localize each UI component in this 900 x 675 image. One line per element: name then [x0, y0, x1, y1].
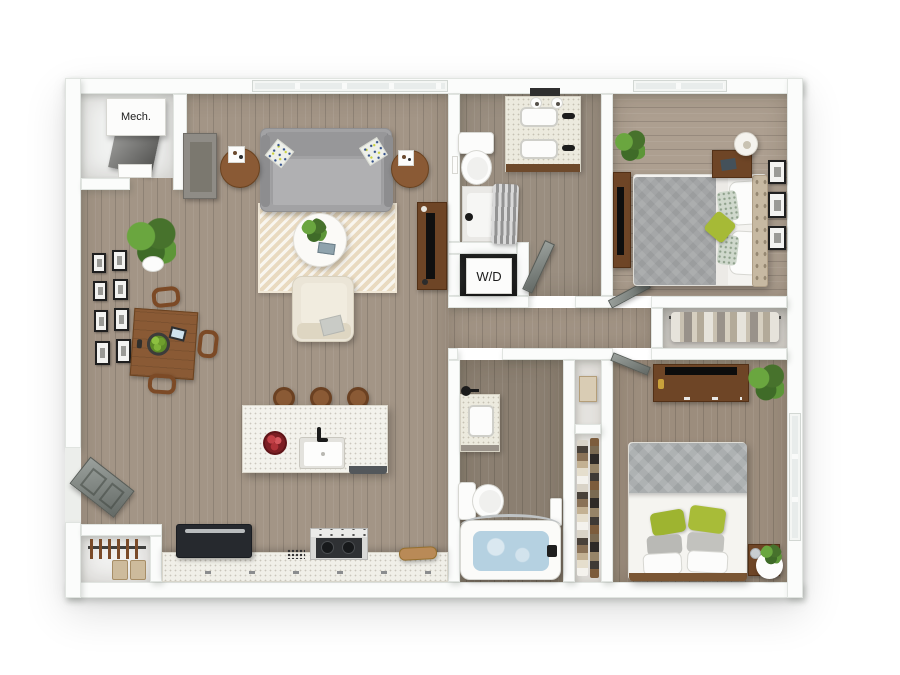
- bath-water: [473, 531, 549, 571]
- potted-plant-bedroom2: [748, 364, 784, 404]
- gallery-frame: [92, 253, 106, 273]
- sofa-seat: [271, 159, 383, 205]
- wall-entry-closet-top: [81, 524, 162, 536]
- vanity-tray: [530, 88, 560, 96]
- entry-cabinet-panel: [190, 142, 212, 192]
- toilet-seat: [479, 490, 501, 513]
- bedroom2-dresser: [653, 364, 749, 402]
- outer-wall-left-upper: [65, 78, 81, 448]
- kitchen-island: [242, 405, 388, 473]
- headboard: [752, 175, 768, 287]
- hallway-floor: [448, 308, 651, 348]
- wall-frame: [768, 192, 786, 218]
- island-faucet-spout: [317, 438, 328, 442]
- armchair: [292, 276, 354, 342]
- tv-console: [417, 202, 447, 290]
- bedroom-1-window: [633, 80, 727, 92]
- folded-towels: [577, 440, 588, 576]
- wall-hall-north-c: [651, 296, 787, 308]
- gallery-frame: [93, 281, 107, 301]
- plant-pot-entry: [142, 256, 164, 272]
- refrigerator: [176, 524, 252, 558]
- range-stove: [310, 528, 368, 560]
- wall-hall-south-c: [651, 348, 787, 360]
- sink-basin: [520, 139, 558, 159]
- wall-bedroom-closet-west: [651, 308, 663, 348]
- linen-cubby-box: [579, 376, 597, 402]
- dining-chair-east: [197, 329, 220, 359]
- dining-chair-north: [151, 286, 181, 309]
- wall-frame: [768, 160, 786, 184]
- dresser-pulls: [662, 397, 742, 400]
- toilet-bowl: [461, 150, 492, 185]
- bed-bedroom2: [628, 442, 746, 580]
- sofa-arm-left: [261, 135, 270, 207]
- tub-faucet: [547, 545, 557, 557]
- mech-pan: [118, 164, 152, 178]
- gallery-frame: [113, 279, 128, 300]
- stove-control-panel: [311, 529, 367, 537]
- book: [720, 158, 736, 171]
- wall-mech-south: [81, 178, 130, 190]
- hanging-clothes-linen: [590, 438, 599, 578]
- storage-basket: [112, 560, 128, 580]
- sconce-center: [556, 102, 560, 106]
- washer-dryer-unit: W/D: [466, 258, 512, 294]
- sofa: [260, 128, 392, 212]
- console-decor: [421, 206, 427, 212]
- wall-frame: [768, 226, 786, 250]
- hanging-clothes: [671, 312, 779, 342]
- toilet-bowl: [472, 484, 504, 518]
- candle: [233, 151, 237, 155]
- stove-cooktop: [316, 538, 362, 558]
- candle: [239, 155, 243, 159]
- wall-hall-north-b: [575, 296, 613, 308]
- bed-frame-wood: [629, 573, 747, 581]
- gallery-frame: [94, 310, 108, 332]
- throw-blanket-gray: [629, 443, 747, 493]
- pepper-grinder: [137, 339, 143, 348]
- cutting-board: [399, 546, 438, 561]
- refrigerator-handles: [185, 529, 245, 533]
- tv: [665, 367, 737, 375]
- dishwasher: [349, 466, 387, 474]
- floor-plan-render: Mech.: [0, 0, 900, 675]
- sconce-light: [551, 97, 563, 109]
- vanity-cabinet-edge: [506, 164, 580, 172]
- burner: [342, 541, 355, 554]
- wall-bath2-west: [448, 360, 460, 582]
- bath2-vanity: [460, 394, 500, 452]
- entry-door-panel-2: [99, 482, 125, 509]
- wall-hall-north-a: [448, 296, 529, 308]
- gallery-frame: [95, 341, 110, 365]
- counter-drawer-pulls: [167, 571, 445, 574]
- burner: [321, 541, 334, 554]
- wall-bath2-east: [563, 360, 575, 582]
- sink-basin: [520, 107, 558, 127]
- gallery-frame: [114, 308, 129, 331]
- bath1-vanity: [505, 96, 581, 172]
- bed-bedroom1: [633, 174, 767, 286]
- tablet-screen: [171, 329, 185, 340]
- shower-head: [465, 213, 473, 221]
- wall-laundry-west: [448, 254, 460, 296]
- candle-tray-right: [398, 150, 414, 166]
- wall-bedroom1-west: [601, 94, 613, 296]
- storage-basket: [130, 560, 146, 580]
- bathtub: [460, 520, 561, 580]
- entry-cabinet: [183, 133, 217, 199]
- candle: [402, 155, 406, 159]
- tablet: [169, 326, 187, 342]
- wall-hall-south-b: [502, 348, 613, 360]
- fruit-bowl-red: [263, 431, 287, 455]
- candle: [408, 158, 411, 161]
- wall-hall-south-a: [448, 348, 458, 360]
- table-lamp: [734, 132, 758, 156]
- tv: [617, 187, 624, 255]
- sconce-center: [535, 102, 539, 106]
- console-decor: [422, 279, 428, 285]
- outer-wall-left-lower: [65, 522, 81, 598]
- shower-arm-bath2: [469, 389, 479, 392]
- dresser-decor-gold: [658, 379, 664, 389]
- coffee-table-plant: [301, 218, 327, 244]
- pillow-green: [687, 505, 726, 535]
- sconce-light: [530, 97, 542, 109]
- mech-unit-label: Mech.: [107, 99, 165, 135]
- wall-bedroom2-west: [601, 360, 613, 582]
- vanity-cabinet-edge: [461, 445, 499, 451]
- outer-wall-bottom: [65, 582, 803, 598]
- wall-linen-divider: [575, 424, 601, 434]
- toilet-seat: [467, 157, 488, 180]
- shower-curtain: [491, 184, 519, 245]
- sink-drain: [321, 452, 325, 456]
- faucet: [562, 113, 575, 119]
- potted-plant-bedroom1: [615, 130, 645, 164]
- wall-entry-closet-east: [150, 536, 162, 582]
- lamp-finial: [743, 141, 751, 149]
- candle-tray-left: [228, 146, 245, 163]
- coffee-table-books: [317, 242, 335, 255]
- kitchen-utensils: [287, 549, 305, 559]
- coat-hangers: [90, 539, 144, 559]
- living-room-window: [252, 80, 448, 92]
- bedroom1-dresser: [613, 172, 631, 268]
- bedroom-2-window: [789, 413, 801, 541]
- dining-table: [130, 308, 199, 380]
- basket-plant-leaves: [760, 544, 782, 566]
- sink-basin: [468, 405, 494, 437]
- mech-unit: Mech.: [106, 98, 166, 136]
- gallery-frame: [116, 339, 131, 363]
- faucet: [562, 145, 575, 151]
- gallery-frame: [112, 250, 127, 271]
- dining-chair-south: [147, 373, 176, 395]
- washer-dryer-label: W/D: [467, 259, 511, 293]
- tv: [426, 213, 435, 279]
- pillow-white: [686, 550, 728, 574]
- towel-bar: [452, 156, 458, 174]
